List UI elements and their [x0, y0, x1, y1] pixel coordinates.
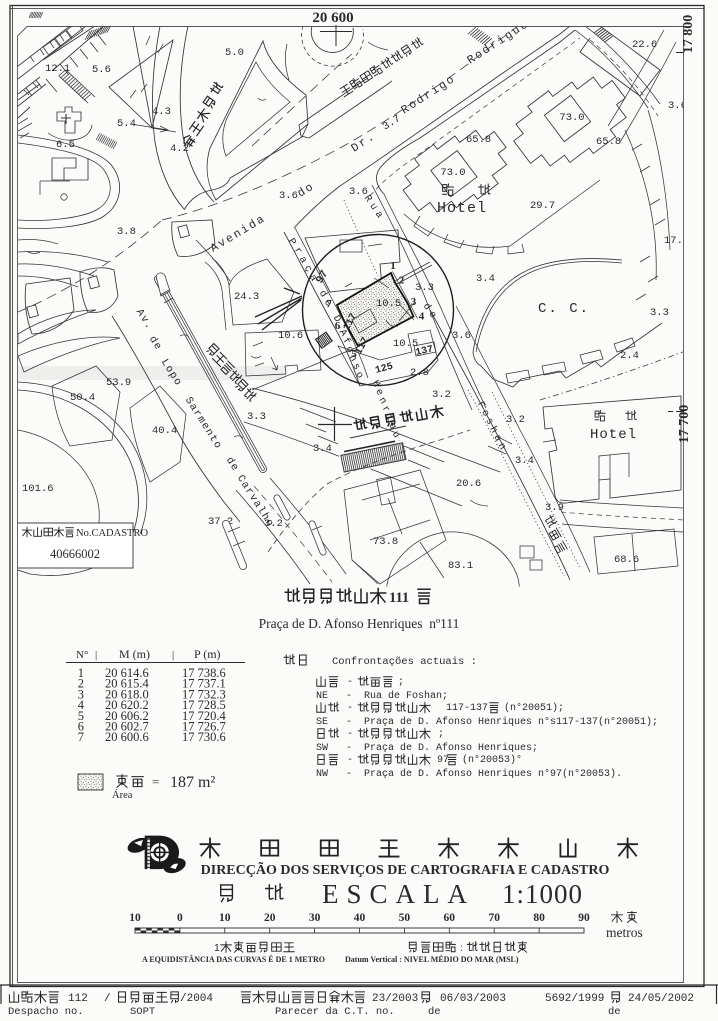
svg-text:-: -	[347, 729, 353, 740]
svg-text:Avenida: Avenida	[208, 212, 268, 255]
svg-text:SE - Praça de D. Afonso Hen: SE - Praça de D. Afonso Henriques n°s117…	[316, 716, 658, 728]
svg-text:3.4: 3.4	[313, 443, 332, 455]
svg-text:|: |	[95, 649, 97, 661]
svg-text:24/05/2002: 24/05/2002	[628, 993, 694, 1005]
svg-text:-: -	[347, 755, 353, 766]
svg-text:29.7: 29.7	[530, 200, 555, 212]
svg-text:101.6: 101.6	[22, 483, 54, 495]
svg-text:40.4: 40.4	[152, 425, 177, 437]
svg-text:3.3: 3.3	[650, 307, 669, 319]
svg-text:Confrontações actuais :: Confrontações actuais :	[332, 656, 477, 668]
svg-text:7: 7	[326, 298, 332, 310]
svg-text:3.8: 3.8	[117, 226, 136, 238]
svg-text:97: 97	[437, 755, 449, 766]
svg-text:17 730.6: 17 730.6	[182, 730, 226, 744]
svg-text:N°: N°	[76, 649, 88, 661]
svg-text:3.2: 3.2	[264, 518, 283, 530]
svg-text:83.1: 83.1	[448, 560, 473, 572]
svg-text:/: /	[104, 993, 111, 1005]
svg-text:Hotel: Hotel	[437, 200, 487, 217]
svg-text:3: 3	[411, 296, 417, 308]
svg-text:17.4: 17.4	[664, 235, 689, 247]
svg-text:3.4: 3.4	[476, 273, 495, 285]
svg-text:SW - Praça de D. Afonso Hen: SW - Praça de D. Afonso Henriques;	[316, 742, 538, 754]
svg-text:50: 50	[399, 912, 411, 924]
svg-text:-: -	[347, 703, 353, 714]
svg-text:DIRECÇÃO DOS SERVIÇOS DE CARTO: DIRECÇÃO DOS SERVIÇOS DE CARTOGRAFIA E C…	[201, 860, 610, 878]
svg-text:3.2: 3.2	[506, 414, 525, 426]
svg-text:80: 80	[533, 912, 545, 924]
svg-text:6: 6	[335, 320, 341, 332]
svg-text:M (m): M (m)	[119, 647, 150, 661]
svg-text::: :	[460, 942, 463, 954]
svg-text:3.2: 3.2	[432, 389, 451, 401]
svg-text:=: =	[152, 774, 159, 789]
svg-text:10.6: 10.6	[278, 330, 303, 342]
svg-text:de: de	[428, 1006, 441, 1018]
svg-text:(n°20053)°: (n°20053)°	[462, 754, 522, 766]
svg-text:111: 111	[389, 590, 409, 606]
svg-text:Hotel: Hotel	[590, 427, 637, 443]
svg-text:2.8: 2.8	[410, 367, 429, 379]
svg-text:3.7: 3.7	[381, 113, 403, 133]
svg-text:A EQUIDISTÂNCIA DAS CURVAS É D: A EQUIDISTÂNCIA DAS CURVAS É DE 1 METRO	[142, 954, 325, 964]
svg-text:40: 40	[354, 912, 366, 924]
svg-text:ESCALA: ESCALA	[322, 879, 475, 909]
svg-text:3.6: 3.6	[279, 190, 298, 202]
svg-text:3.6: 3.6	[452, 330, 471, 342]
svg-text:(n°20051);: (n°20051);	[504, 702, 564, 714]
svg-text:68.6: 68.6	[614, 554, 639, 566]
svg-text:73.0: 73.0	[440, 167, 465, 179]
svg-text:P (m): P (m)	[194, 647, 221, 661]
svg-text:12.1: 12.1	[45, 63, 70, 75]
svg-text:70: 70	[488, 912, 500, 924]
svg-text:;: ;	[398, 677, 404, 688]
svg-text:3.4: 3.4	[515, 455, 534, 467]
svg-text:7: 7	[78, 730, 84, 744]
svg-text:65.8: 65.8	[596, 136, 621, 148]
svg-text:137: 137	[415, 344, 435, 359]
svg-text:Parecer da C.T. no.: Parecer da C.T. no.	[275, 1006, 395, 1018]
svg-text:metros: metros	[606, 925, 643, 940]
svg-text:|: |	[172, 649, 174, 661]
svg-text:20 600: 20 600	[312, 10, 353, 26]
svg-text:NW - Praça de D. Afonso Hen: NW - Praça de D. Afonso Henriques n°97(n…	[316, 768, 622, 780]
svg-text:125: 125	[374, 362, 394, 377]
svg-text:Área: Área	[112, 789, 133, 801]
svg-text:Praça de D. Afonso Henriques: Praça de D. Afonso Henriques nº111	[259, 616, 460, 631]
svg-text:3.3: 3.3	[415, 282, 434, 294]
svg-text:17 800: 17 800	[681, 15, 696, 54]
svg-text:23/2003: 23/2003	[372, 993, 418, 1005]
svg-text:4.3: 4.3	[152, 106, 171, 118]
svg-text:3.6: 3.6	[668, 100, 687, 112]
svg-text:r: r	[291, 246, 304, 257]
svg-text:90: 90	[578, 912, 590, 924]
svg-text:5.0: 5.0	[225, 47, 244, 59]
svg-text:117-137: 117-137	[446, 703, 488, 714]
svg-text:187 m²: 187 m²	[170, 774, 215, 791]
svg-text:20: 20	[264, 912, 276, 924]
svg-text:20.6: 20.6	[456, 478, 481, 490]
svg-text:17 700: 17 700	[677, 405, 692, 444]
svg-text:Despacho no.: Despacho no.	[8, 1006, 84, 1018]
svg-text:73.8: 73.8	[373, 536, 398, 548]
svg-text:0: 0	[177, 912, 183, 924]
svg-text:60: 60	[444, 912, 456, 924]
svg-text:10: 10	[219, 912, 231, 924]
svg-text:10: 10	[129, 912, 141, 924]
svg-text:1:1000: 1:1000	[502, 879, 583, 909]
svg-text:97: 97	[314, 269, 331, 287]
svg-text:50.4: 50.4	[70, 392, 95, 404]
svg-text:24.3: 24.3	[234, 291, 259, 303]
svg-text:40666002: 40666002	[50, 547, 100, 561]
svg-text:3.3: 3.3	[247, 411, 266, 423]
svg-text:NE - Rua de Foshan;: NE - Rua de Foshan;	[316, 690, 448, 702]
svg-text:-: -	[347, 677, 353, 688]
svg-text:2.4: 2.4	[620, 350, 639, 362]
svg-text:C. C.: C. C.	[538, 301, 590, 317]
svg-text:10.5: 10.5	[376, 298, 401, 310]
svg-text:No.CADASTRO: No.CADASTRO	[76, 528, 148, 539]
svg-text:/2004: /2004	[180, 993, 213, 1005]
svg-text:30: 30	[309, 912, 321, 924]
svg-text:a: a	[296, 255, 309, 266]
svg-text:e: e	[425, 310, 437, 321]
svg-text:5.6: 5.6	[92, 64, 111, 76]
svg-text:65.8: 65.8	[466, 134, 491, 146]
svg-text:Rodrigues: Rodrigues	[465, 13, 539, 68]
svg-text:;: ;	[438, 729, 444, 740]
svg-text:SOPT: SOPT	[130, 1006, 155, 1018]
svg-text:73.0: 73.0	[559, 112, 584, 124]
svg-text:Dr.: Dr.	[349, 130, 378, 155]
svg-text:do: do	[295, 180, 317, 200]
svg-text:20 600.6: 20 600.6	[105, 730, 149, 744]
svg-text:06/03/2003: 06/03/2003	[440, 993, 506, 1005]
svg-text:Datum Vertical : NIVEL MÉDIO D: Datum Vertical : NIVEL MÉDIO DO MAR (MSL…	[345, 954, 519, 964]
svg-text:de: de	[608, 1006, 621, 1018]
svg-text:112: 112	[68, 993, 88, 1005]
svg-text:1: 1	[214, 942, 220, 954]
svg-text:a: a	[372, 210, 384, 221]
svg-text:5692/1999: 5692/1999	[545, 993, 604, 1005]
svg-text:1: 1	[390, 260, 396, 272]
